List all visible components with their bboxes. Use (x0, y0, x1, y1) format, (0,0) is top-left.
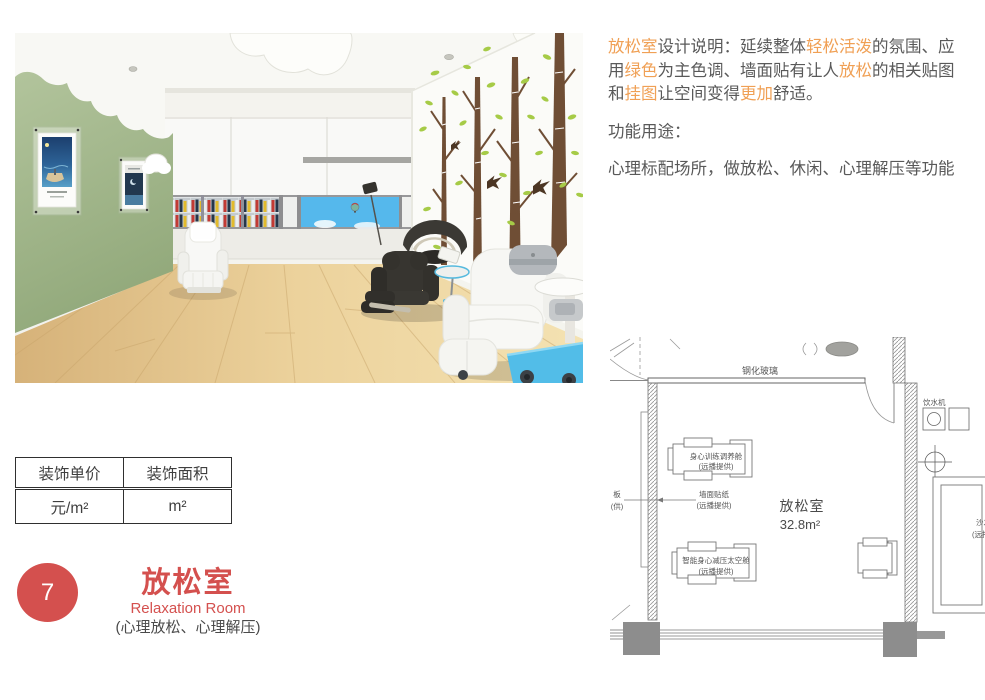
spec-value-area: m² (124, 489, 232, 524)
column-grid-marker (918, 445, 952, 479)
back-wall-band (165, 93, 415, 117)
chair-symbol (858, 538, 897, 578)
label-cabin1-line1: 身心训练调养舱 (690, 451, 743, 461)
room-render-image (15, 33, 583, 383)
water-dispenser-symbol (923, 408, 969, 430)
description-paragraph: 放松室设计说明：延续整体轻松活泼的氛围、应用绿色为主色调、墙面贴有让人放松的相关… (608, 36, 964, 107)
section-title-block: 放松室 Relaxation Room (心理放松、心理解压) (93, 566, 283, 637)
front-caster (458, 370, 468, 380)
label-cabin2-line2: (远播提供) (699, 566, 734, 576)
spec-table-value-row: 元/m² m² (16, 489, 232, 524)
section-subtitle: (心理放松、心理解压) (93, 618, 283, 637)
spec-table: 装饰单价 装饰面积 元/m² m² (15, 457, 232, 524)
section-number: 7 (41, 579, 54, 607)
label-tempered-glass: 钢化玻璃 (742, 365, 778, 376)
section-title-cn: 放松室 (93, 566, 283, 600)
door-swing (865, 381, 894, 424)
label-room-area: 32.8m² (780, 517, 821, 532)
label-wall-sticker-line1: 墙面贴纸 (699, 489, 729, 499)
ceiling-recess (165, 88, 415, 93)
label-left-partial-line1: 板 (613, 489, 621, 499)
top-wall-glass (648, 378, 865, 383)
label-water-dispenser: 饮水机 (923, 397, 946, 407)
section-title-en: Relaxation Room (93, 600, 283, 618)
label-sofa-line2: (远播提供) (972, 529, 985, 539)
plan-labels: 钢化玻璃 身心训练调养舱 (远播提供) 墙面贴纸 (远播提供) 放松室 32.8… (611, 365, 985, 576)
column-left (623, 622, 660, 655)
label-room-name: 放松室 (780, 498, 825, 514)
plan-cropped-context (610, 337, 858, 380)
floor-plan-svg: 钢化玻璃 身心训练调养舱 (远播提供) 墙面贴纸 (远播提供) 放松室 32.8… (610, 337, 985, 700)
bookshelf-through-glass (167, 197, 279, 227)
label-cabin1-line2: (远播提供) (699, 461, 734, 471)
label-wall-sticker-line2: (远播提供) (697, 500, 732, 510)
label-cabin2-line1: 智能身心减压太空舱 (682, 555, 750, 565)
floor-plan: 钢化玻璃 身心训练调养舱 (远播提供) 墙面贴纸 (远播提供) 放松室 32.8… (610, 337, 985, 700)
function-text: 心理标配场所，做放松、休闲、心理解压等功能 (608, 158, 964, 182)
right-wall (905, 383, 917, 622)
wall-sticker-leader (624, 498, 696, 503)
label-sofa-line1: 沙发 (976, 517, 985, 527)
room-render-svg (15, 33, 583, 383)
spec-table-header-row: 装饰单价 装饰面积 (16, 458, 232, 489)
blind-roller-bar (303, 157, 413, 163)
display-panel (641, 412, 648, 567)
design-description: 放松室设计说明：延续整体轻松活泼的氛围、应用绿色为主色调、墙面贴有让人放松的相关… (608, 36, 964, 196)
spec-value-unit-price: 元/m² (16, 489, 124, 524)
right-wall-upper (893, 337, 905, 383)
poster-sea-boat (33, 127, 81, 215)
function-label: 功能用途： (608, 121, 964, 145)
label-left-partial-line2: (供) (611, 501, 624, 511)
column-right (883, 622, 917, 657)
section-number-badge: 7 (17, 563, 78, 622)
left-wall (648, 383, 657, 620)
spec-header-unit-price: 装饰单价 (16, 458, 124, 489)
wall-stub-right (917, 631, 945, 639)
document-page: 放松室设计说明：延续整体轻松活泼的氛围、应用绿色为主色调、墙面贴有让人放松的相关… (0, 0, 985, 700)
sofa-symbol (933, 477, 985, 613)
spec-header-area: 装饰面积 (124, 458, 232, 489)
